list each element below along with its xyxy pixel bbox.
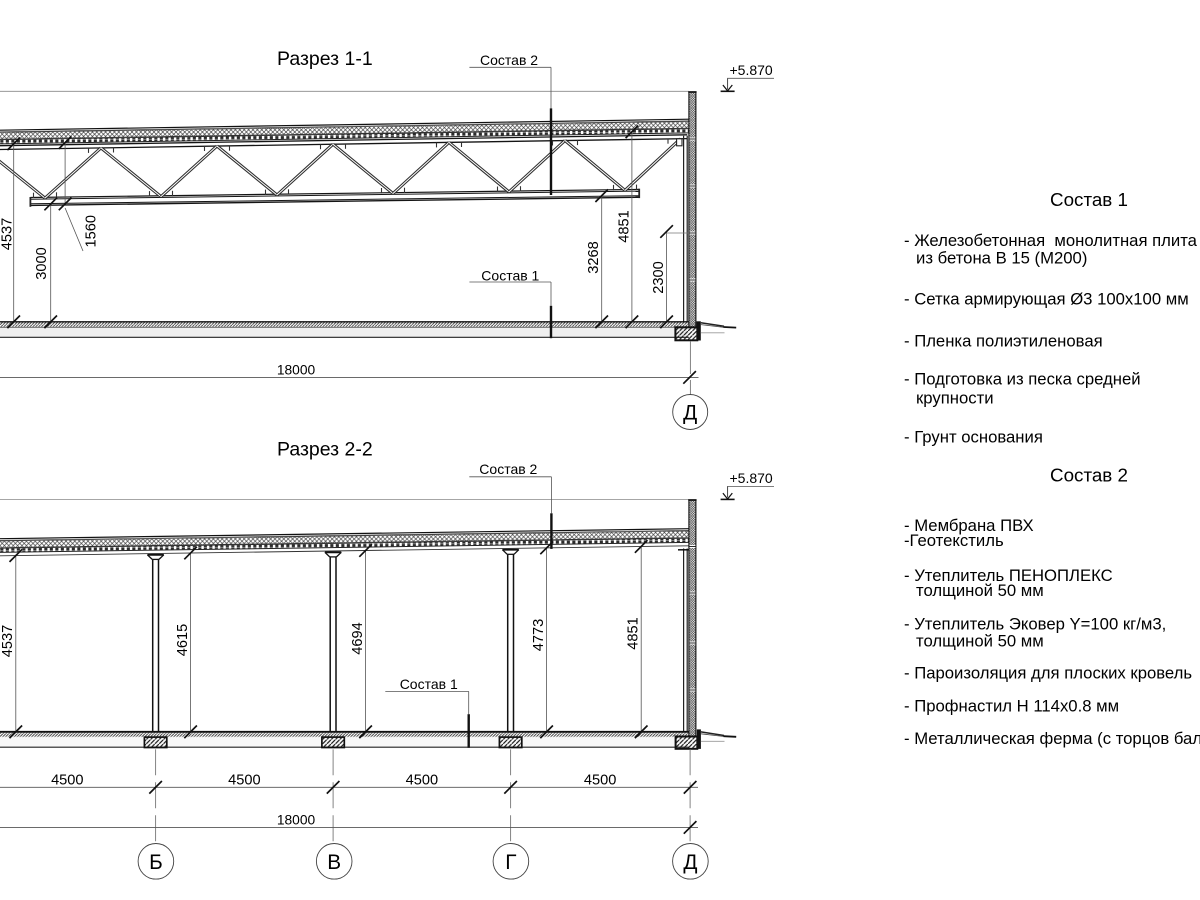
svg-text:толщиной 50 мм: толщиной 50 мм bbox=[916, 632, 1044, 651]
svg-text:1560: 1560 bbox=[83, 215, 99, 247]
svg-text:крупности: крупности bbox=[916, 389, 994, 408]
svg-text:Г: Г bbox=[505, 851, 516, 874]
svg-text:4500: 4500 bbox=[584, 773, 616, 789]
svg-text:4500: 4500 bbox=[51, 773, 83, 789]
svg-text:Состав 1: Состав 1 bbox=[481, 267, 539, 283]
svg-text:3268: 3268 bbox=[586, 241, 602, 273]
svg-text:Разрез 1-1: Разрез 1-1 bbox=[277, 48, 373, 70]
svg-text:- Пароизоляция для плоских кро: - Пароизоляция для плоских кровель bbox=[904, 664, 1192, 683]
svg-text:В: В bbox=[327, 851, 341, 874]
svg-text:4615: 4615 bbox=[175, 624, 191, 656]
svg-text:4851: 4851 bbox=[626, 617, 642, 649]
svg-text:Состав 2: Состав 2 bbox=[480, 52, 538, 68]
svg-text:+5.870: +5.870 bbox=[730, 470, 773, 486]
svg-text:- Металлическая ферма (с торцо: - Металлическая ферма (с торцов бал bbox=[904, 729, 1200, 748]
svg-text:Состав 2: Состав 2 bbox=[479, 461, 537, 477]
svg-text:- Подготовка из песка средней: - Подготовка из песка средней bbox=[904, 370, 1141, 389]
svg-text:Разрез 2-2: Разрез 2-2 bbox=[277, 439, 373, 461]
svg-text:- Пленка полиэтиленовая: - Пленка полиэтиленовая bbox=[904, 332, 1103, 351]
svg-text:4851: 4851 bbox=[616, 210, 632, 242]
svg-text:- Грунт основания: - Грунт основания bbox=[904, 428, 1043, 447]
svg-text:3000: 3000 bbox=[34, 247, 50, 279]
svg-text:-Геотекстиль: -Геотекстиль bbox=[904, 531, 1004, 550]
svg-text:- Железобетонная монолитная п: - Железобетонная монолитная плита bbox=[904, 231, 1198, 250]
svg-text:из бетона В 15 (М200): из бетона В 15 (М200) bbox=[916, 249, 1087, 268]
svg-text:Д: Д bbox=[683, 851, 697, 874]
svg-text:4537: 4537 bbox=[0, 625, 16, 657]
svg-text:- Сетка армирующая Ø3 100х100: - Сетка армирующая Ø3 100х100 мм bbox=[904, 290, 1189, 309]
svg-text:4773: 4773 bbox=[531, 619, 547, 651]
svg-text:толщиной 50 мм: толщиной 50 мм bbox=[916, 581, 1044, 600]
svg-text:18000: 18000 bbox=[277, 813, 316, 828]
svg-text:18000: 18000 bbox=[277, 363, 316, 378]
svg-text:2300: 2300 bbox=[651, 261, 667, 293]
svg-text:- Профнастил Н 114х0.8 мм: - Профнастил Н 114х0.8 мм bbox=[904, 697, 1119, 716]
svg-text:Состав 2: Состав 2 bbox=[1050, 465, 1128, 486]
svg-text:Д: Д bbox=[683, 401, 697, 424]
svg-text:4500: 4500 bbox=[228, 773, 260, 789]
svg-text:Состав 1: Состав 1 bbox=[400, 676, 458, 692]
svg-text:4537: 4537 bbox=[0, 218, 16, 250]
svg-text:Б: Б bbox=[149, 851, 163, 874]
svg-text:4694: 4694 bbox=[350, 622, 366, 654]
svg-text:4500: 4500 bbox=[406, 773, 438, 789]
svg-text:+5.870: +5.870 bbox=[730, 62, 773, 78]
svg-text:Состав 1: Состав 1 bbox=[1050, 189, 1128, 210]
